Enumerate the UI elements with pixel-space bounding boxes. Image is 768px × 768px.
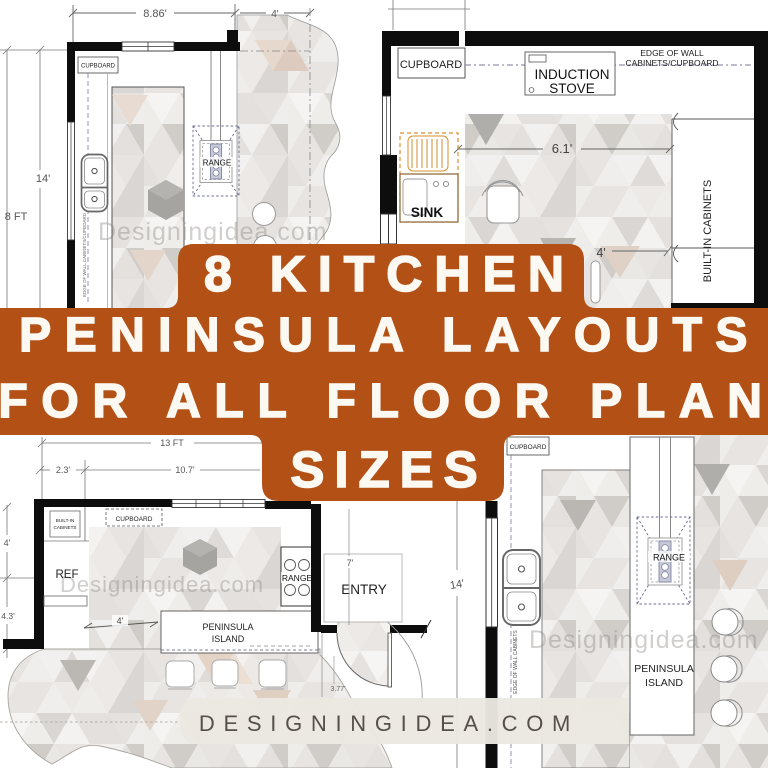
svg-text:2.3': 2.3' [56,465,71,475]
svg-text:CUPBOARD: CUPBOARD [116,516,153,523]
svg-text:STOVE: STOVE [549,81,595,96]
svg-text:14': 14' [449,578,465,592]
svg-text:3.77': 3.77' [331,686,346,693]
svg-text:13 FT: 13 FT [160,438,184,448]
svg-text:CUPBOARD: CUPBOARD [400,59,462,71]
svg-text:6.1': 6.1' [552,141,573,156]
svg-text:FOR ALL FLOOR PLAN: FOR ALL FLOOR PLAN [0,375,768,428]
svg-text:DESIGNINGIDEA.COM: DESIGNINGIDEA.COM [199,711,579,736]
svg-text:SINK: SINK [411,205,444,220]
svg-text:ENTRY: ENTRY [341,582,387,597]
svg-text:Designingidea.com: Designingidea.com [60,572,264,597]
svg-text:4': 4' [596,246,605,260]
svg-text:4': 4' [271,9,279,20]
svg-text:RANGE: RANGE [653,553,685,563]
svg-text:EDGE OF WALL CABINETS/CUPBOARD: EDGE OF WALL CABINETS/CUPBOARD [82,212,87,297]
svg-text:14': 14' [36,173,50,185]
svg-text:4.3': 4.3' [1,611,15,621]
svg-text:10.7': 10.7' [175,465,195,475]
svg-text:ISLAND: ISLAND [645,677,683,689]
svg-text:8 FT: 8 FT [5,211,28,223]
svg-text:BUILT-IN CABINETS: BUILT-IN CABINETS [702,180,714,282]
svg-text:4': 4' [117,616,124,626]
svg-text:RANGE: RANGE [282,573,313,583]
svg-text:CABINETS/CUPBOARD: CABINETS/CUPBOARD [625,58,718,68]
svg-text:CUPBOARD: CUPBOARD [510,444,547,451]
svg-text:BUILT-IN: BUILT-IN [56,518,75,523]
svg-text:8 KITCHEN: 8 KITCHEN [204,246,576,302]
svg-text:INDUCTION: INDUCTION [535,67,610,82]
svg-text:EDGE OF WALL CABINETS: EDGE OF WALL CABINETS [513,630,519,694]
svg-text:ISLAND: ISLAND [212,634,245,644]
svg-text:CUPBOARD: CUPBOARD [81,64,116,70]
svg-text:7': 7' [347,558,354,568]
svg-text:EDGE OF WALL: EDGE OF WALL [640,48,704,58]
svg-text:PENINSULA: PENINSULA [634,663,694,675]
svg-text:CABINETS: CABINETS [54,525,77,530]
svg-text:PENINSULA LAYOUTS: PENINSULA LAYOUTS [19,309,761,362]
svg-text:RANGE: RANGE [203,159,231,168]
svg-text:SIZES: SIZES [290,441,487,498]
svg-text:8.86': 8.86' [143,8,167,20]
svg-text:PENINSULA: PENINSULA [202,622,253,632]
svg-text:Designingidea.com: Designingidea.com [98,218,328,246]
svg-text:REF: REF [56,569,79,581]
svg-text:Designingidea.com: Designingidea.com [529,626,759,654]
svg-text:4': 4' [4,538,11,548]
